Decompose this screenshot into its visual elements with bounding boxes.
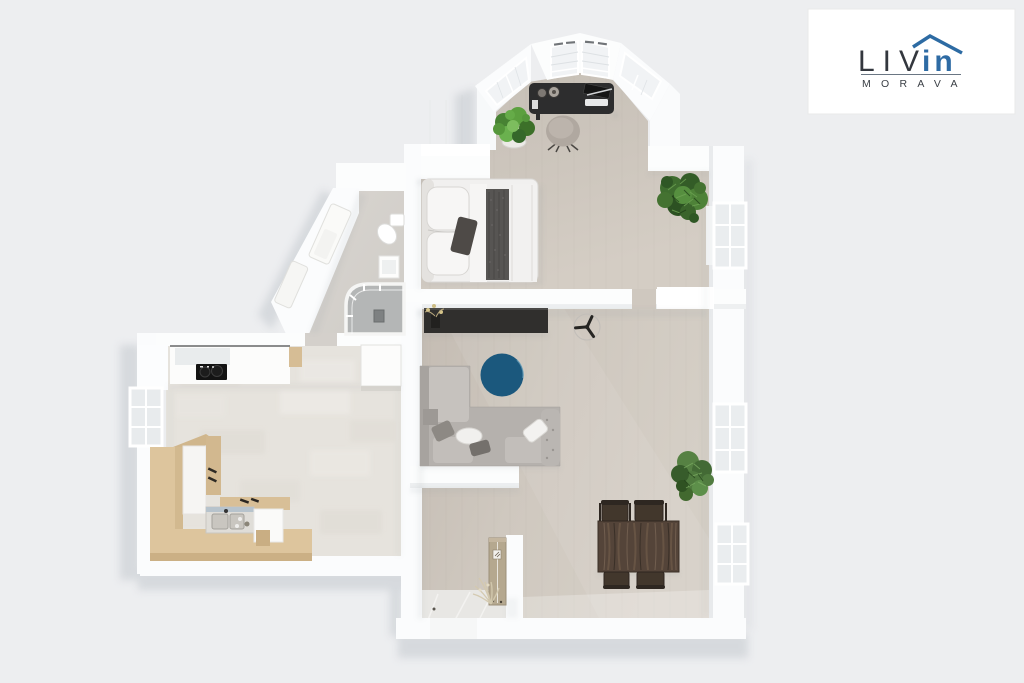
svg-text:in: in <box>922 45 957 78</box>
svg-text:LIV: LIV <box>858 45 927 78</box>
svg-text:MORAVA: MORAVA <box>862 78 968 90</box>
